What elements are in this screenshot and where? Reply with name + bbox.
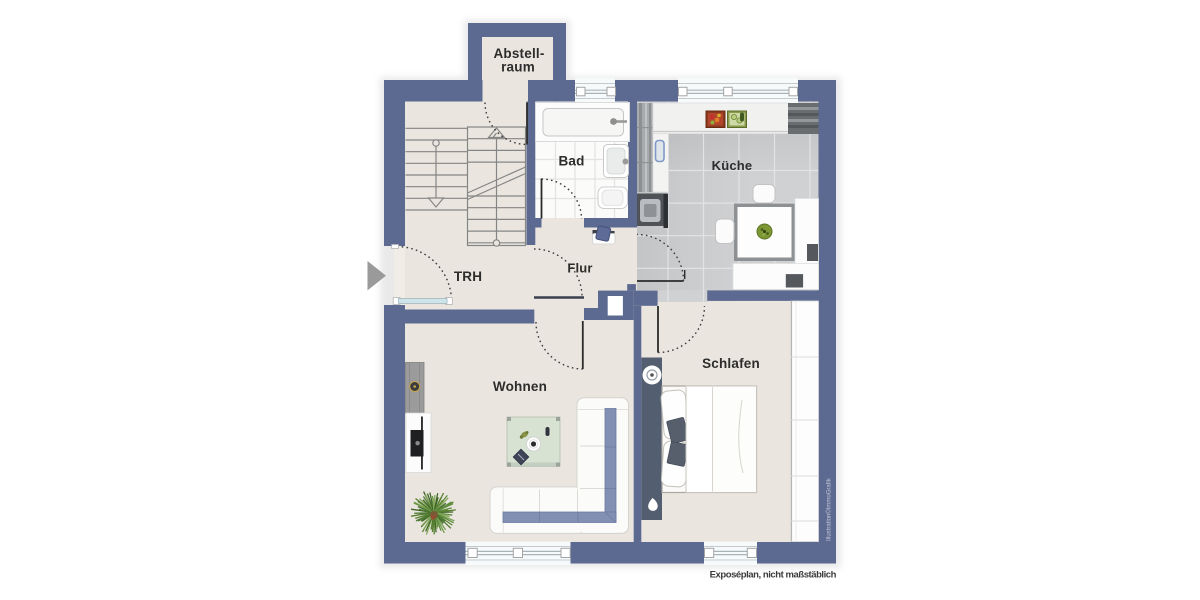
svg-text:Schlafen: Schlafen bbox=[702, 356, 760, 371]
svg-text:Flur: Flur bbox=[567, 261, 592, 276]
svg-text:Küche: Küche bbox=[712, 158, 753, 173]
svg-text:Illustration©ImmoGrafik: Illustration©ImmoGrafik bbox=[826, 477, 833, 541]
svg-text:Exposéplan, nicht maßstäblich: Exposéplan, nicht maßstäblich bbox=[710, 570, 837, 581]
svg-text:Bad: Bad bbox=[558, 154, 584, 169]
svg-text:Wohnen: Wohnen bbox=[493, 379, 547, 394]
svg-text:raum: raum bbox=[501, 60, 535, 75]
svg-text:TRH: TRH bbox=[454, 269, 482, 284]
